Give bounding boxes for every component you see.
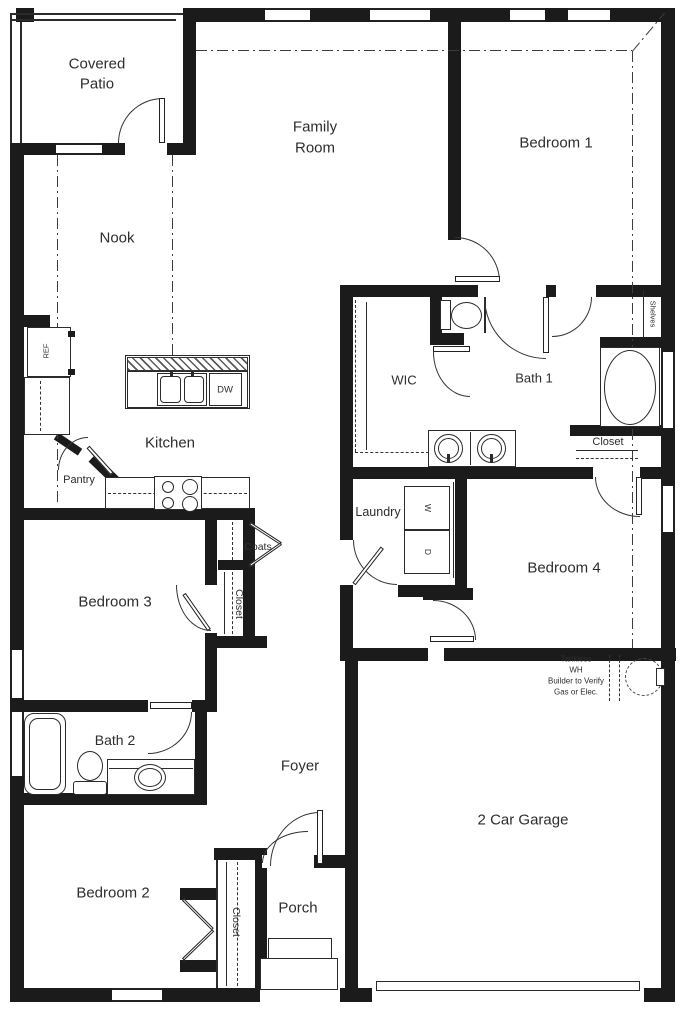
patio-edge [10, 13, 12, 145]
vanity-divider [470, 432, 471, 465]
toilet-bowl [451, 302, 482, 329]
window [112, 988, 162, 1002]
wall [340, 285, 478, 297]
cabinet-dash [40, 381, 41, 431]
wall [180, 888, 217, 900]
window [370, 8, 430, 22]
wall [640, 467, 662, 479]
door-leaf [430, 636, 474, 642]
island-counter-hatch [127, 357, 248, 371]
wall [10, 508, 255, 520]
wall [455, 479, 467, 589]
label-coats: Coats [244, 541, 271, 553]
faucet [170, 372, 173, 376]
window [56, 143, 102, 155]
wall [10, 143, 196, 155]
door-arc [433, 600, 476, 640]
door-opening [260, 988, 340, 1002]
refrigerator-hinge [68, 369, 75, 375]
wall [423, 588, 473, 600]
door-leaf [636, 477, 642, 515]
burner [162, 481, 174, 493]
wall [183, 8, 196, 155]
burner [162, 497, 174, 509]
wall [448, 22, 461, 240]
room-label-bath2: Bath 2 [95, 732, 135, 748]
vanity-sink [138, 768, 162, 787]
room-label-bedroom2: Bedroom 2 [76, 885, 149, 902]
room-label-garage: 2 Car Garage [478, 812, 569, 829]
wall [24, 315, 50, 327]
toilet-bowl [77, 751, 103, 781]
window [661, 486, 675, 532]
room-label-family-room: Family [293, 119, 337, 136]
bathtub [604, 350, 656, 425]
label-wh-note: WH [569, 666, 582, 675]
wall [596, 285, 662, 297]
linen-rod-dash [576, 458, 638, 459]
refrigerator-hinge [68, 331, 75, 337]
sink-basin [184, 376, 204, 403]
wh-dash [619, 655, 620, 701]
door-arc [484, 297, 546, 359]
label-wh-note: Tankless [560, 655, 591, 664]
cabinet [24, 377, 70, 435]
toilet-tank [440, 300, 451, 330]
door-arc [433, 352, 470, 397]
wic-shelf-line [366, 302, 367, 450]
wall [205, 520, 217, 585]
porch-step [268, 938, 332, 960]
wh-dash [609, 655, 610, 701]
room-label-covered-patio: Patio [80, 76, 114, 93]
door-opening [340, 540, 353, 585]
burner [182, 479, 198, 495]
room-label-bedroom3: Bedroom 3 [78, 594, 151, 611]
faucet [191, 372, 194, 376]
wall [340, 585, 353, 648]
wall [180, 960, 217, 972]
room-label-wic: WIC [391, 373, 416, 388]
linen-shelf-line [576, 450, 638, 451]
door-opening [125, 143, 167, 155]
wall [340, 467, 593, 479]
bifold-door-leaf [182, 898, 214, 930]
closet-front-line [216, 860, 218, 988]
door-arc [148, 712, 192, 754]
toilet-tank [73, 781, 107, 795]
ceiling-line [196, 50, 632, 51]
window [265, 8, 310, 22]
closet-shelf-line [226, 862, 227, 986]
wall [243, 520, 255, 648]
door-leaf [455, 276, 500, 282]
door-arc [552, 297, 592, 337]
room-label-family-room: Room [295, 140, 335, 157]
wall [340, 285, 353, 540]
coats-rod-dash [232, 522, 233, 560]
label-ref: REF [42, 344, 51, 359]
room-label-kitchen: Kitchen [145, 435, 195, 452]
label-closet-linen: Closet [592, 436, 623, 448]
door-leaf [543, 297, 549, 353]
wic-shelf-dash [355, 300, 356, 452]
window [10, 650, 24, 698]
bifold-door-leaf [182, 929, 214, 960]
room-label-laundry: Laundry [355, 505, 400, 519]
label-washer: W [423, 504, 433, 512]
label-wh-note: Builder to Verify [548, 677, 604, 686]
faucet [447, 454, 450, 463]
window [568, 8, 610, 22]
burner [182, 496, 198, 512]
window [510, 8, 545, 22]
room-label-pantry: Pantry [63, 474, 95, 486]
door-arc [118, 98, 163, 143]
door-arc [262, 831, 308, 863]
label-wh-note: Gas or Elec. [554, 688, 598, 697]
room-label-porch: Porch [278, 900, 317, 917]
wall [205, 636, 267, 648]
shelves-line [643, 290, 644, 338]
label-dw: DW [217, 385, 233, 396]
patio-edge [10, 19, 176, 21]
room-label-bedroom1: Bedroom 1 [519, 135, 592, 152]
door-leaf [159, 98, 165, 143]
wall [345, 648, 358, 1002]
water-heater-panel [656, 668, 665, 686]
door-leaf [317, 810, 323, 864]
bathtub-inner [29, 718, 61, 790]
garage-door [376, 981, 640, 991]
wall [430, 333, 464, 345]
door-leaf [150, 702, 192, 709]
label-closet-bed3: Closet [233, 589, 245, 619]
wall [546, 285, 556, 297]
wall [195, 700, 207, 805]
window [10, 712, 24, 776]
label-dryer: D [423, 549, 433, 555]
room-label-covered-patio: Covered [69, 56, 126, 73]
laundry-alcove-line [453, 482, 454, 578]
floor-plan: Covered Patio Family Room Bedroom 1 Nook… [0, 0, 694, 1024]
door-arc [595, 477, 640, 517]
patio-edge [20, 22, 22, 145]
ceiling-line [172, 155, 173, 355]
room-label-foyer: Foyer [281, 758, 319, 775]
wall [340, 648, 676, 661]
window [661, 352, 675, 428]
porch-step [260, 958, 338, 990]
patio-edge [10, 13, 186, 15]
door-opening [428, 648, 444, 661]
faucet [490, 454, 493, 463]
label-closet-bed2: Closet [230, 907, 242, 937]
wic-shelf-dash [355, 452, 429, 453]
closet-shelf-line [224, 572, 225, 634]
sink-basin [160, 376, 181, 403]
room-label-nook: Nook [99, 230, 134, 247]
room-label-bath1: Bath 1 [515, 371, 553, 386]
label-shelves: Shelves [649, 301, 658, 328]
room-label-bedroom4: Bedroom 4 [527, 560, 600, 577]
wall [10, 143, 24, 1002]
